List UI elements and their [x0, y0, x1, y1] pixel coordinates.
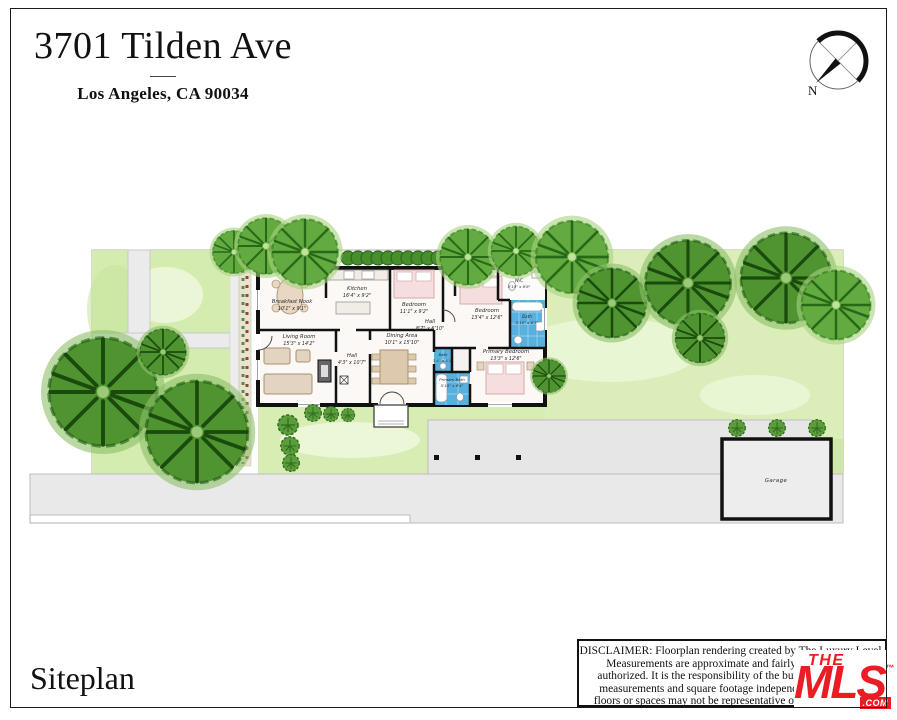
room-name-label: Living Room: [283, 334, 316, 340]
room-dims-label: 10'1" x 15'10": [385, 340, 419, 346]
bush: [305, 405, 322, 422]
siteplan-drawing: Garage: [0, 0, 897, 720]
garden-path-vertical: [128, 250, 150, 342]
room-dims-label: 16'4" x 9'2": [343, 293, 371, 299]
bush: [283, 455, 300, 472]
room-dims-label: 3'6" x 5'5": [433, 358, 454, 363]
mls-logo-com: .COM: [860, 697, 892, 709]
room-name-label: Hall: [347, 353, 358, 359]
bush: [278, 415, 298, 435]
room-dims-label: 13'3" x 12'6": [490, 356, 521, 362]
bush: [729, 420, 746, 437]
room-name-label: Bath: [522, 314, 532, 319]
compass-north-label: N: [808, 83, 818, 98]
room-dims-label: 4'3" x 10'7": [338, 360, 366, 366]
room-dims-label: 11'1" x 9'2": [400, 309, 428, 315]
room-name-label: W/C: [515, 278, 524, 283]
siteplan-label: Siteplan: [30, 660, 135, 697]
room-dims-label: 15'3" x 14'2": [283, 341, 314, 347]
room-name-label: Bath: [438, 352, 448, 357]
bush: [281, 437, 299, 455]
tree: [672, 310, 728, 366]
garage-label: Garage: [765, 478, 788, 484]
compass-rose-icon: N: [798, 20, 888, 105]
room-dims-label: 10'1" x 9'1": [278, 306, 306, 312]
page-subtitle: Los Angeles, CA 90034: [24, 84, 302, 104]
page-title: 3701 Tilden Ave: [24, 24, 302, 68]
tree: [797, 266, 876, 345]
garage: Garage: [722, 439, 831, 519]
mls-logo-tm: ™: [885, 663, 894, 673]
room-dims-label: 5'10" x 8'4": [441, 383, 464, 388]
room-name-label: Bedroom: [475, 308, 499, 314]
tree: [530, 357, 568, 395]
room-name-label: Hall: [425, 319, 436, 325]
bush: [769, 420, 786, 437]
room-name-label: Bedroom: [402, 302, 426, 308]
room-dims-label: 5'10" x 6'7": [516, 320, 539, 325]
bush: [324, 407, 339, 422]
room-dims-label: 8'7" x 6'10": [416, 326, 444, 332]
room-name-label: Primary Bath: [439, 377, 465, 382]
tree: [267, 214, 342, 289]
room-name-label: Dining Area: [386, 333, 417, 339]
closet: [452, 348, 470, 372]
room-dims-label: 13'4" x 12'6": [471, 315, 502, 321]
title-divider: [150, 76, 176, 77]
bush: [809, 420, 826, 437]
room-dims-label: 3'10" x 6'8": [508, 284, 531, 289]
tree: [137, 326, 190, 379]
room-name-label: Breakfast Nook: [272, 299, 313, 305]
bush: [341, 408, 354, 421]
the-mls-logo: THE MLS™ .COM: [794, 650, 892, 712]
room-name-label: Kitchen: [347, 286, 367, 292]
room-name-label: Primary Bedroom: [483, 349, 529, 355]
address-block: 3701 Tilden Ave Los Angeles, CA 90034: [24, 24, 302, 104]
tree: [139, 374, 256, 491]
tree: [573, 264, 652, 343]
